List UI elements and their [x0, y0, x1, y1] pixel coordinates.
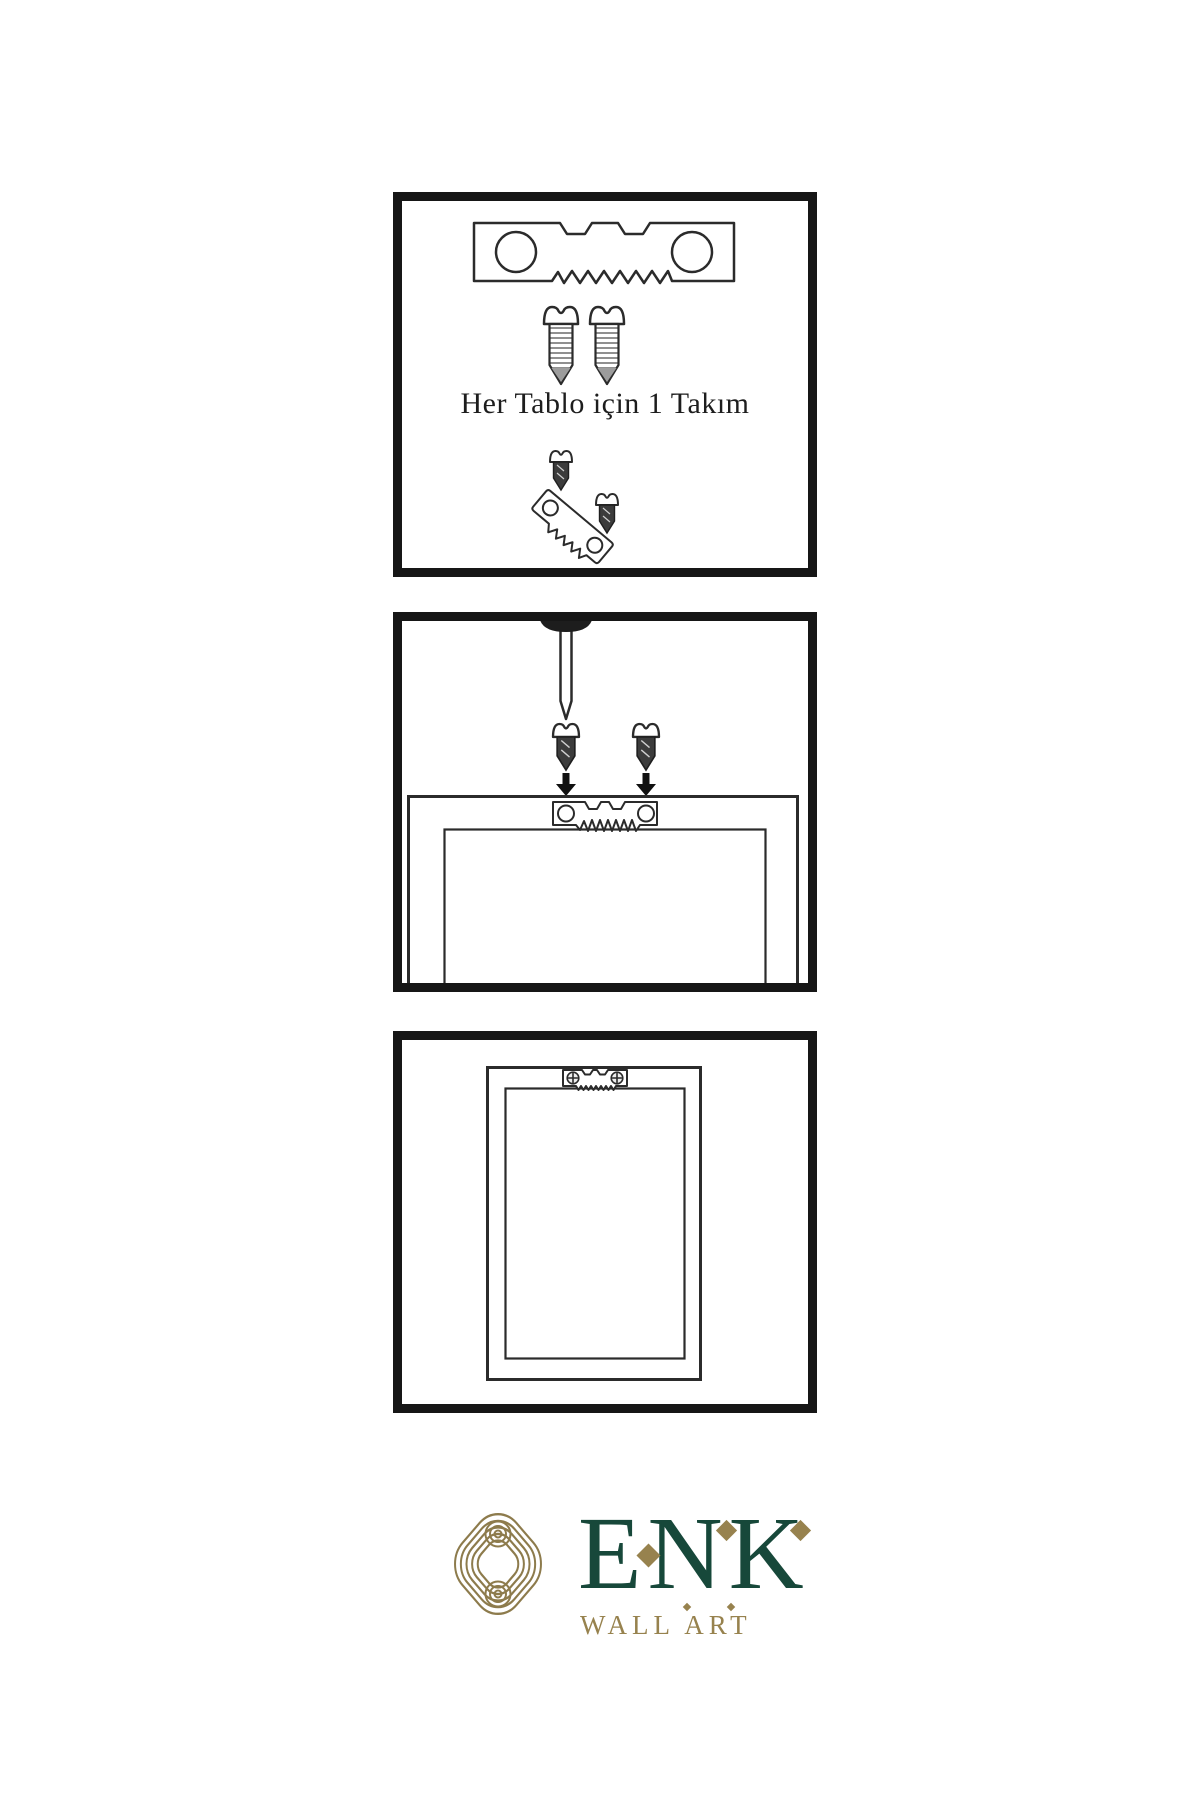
phillips-screw-head-icon — [567, 1072, 579, 1084]
phillips-screw-head-icon — [611, 1072, 623, 1084]
screw-icon — [553, 724, 579, 770]
brand-name: ENK — [578, 1502, 858, 1606]
wall-mounting-illustration — [402, 621, 808, 983]
angled-hanger-kit-icon — [527, 451, 618, 568]
wall-nail-icon — [540, 621, 592, 719]
mounting-screw-icon — [590, 307, 624, 384]
sawtooth-hanger-icon — [474, 223, 734, 283]
brand-logo: ENK WALL ART — [440, 1492, 870, 1652]
knot-logo-icon — [440, 1494, 556, 1634]
hardware-kit-illustration — [402, 201, 808, 568]
step-2-panel — [393, 612, 817, 992]
brand-subtitle-block: WALL ART — [580, 1610, 840, 1644]
frame-back-outline — [488, 1068, 701, 1380]
brand-name-block: ENK — [578, 1502, 858, 1606]
instruction-sheet: Her Tablo için 1 Takım — [0, 0, 1200, 1800]
brand-subtitle: WALL ART — [580, 1610, 840, 1641]
screw-icon — [633, 724, 659, 770]
step-1-panel: Her Tablo için 1 Takım — [393, 192, 817, 577]
installed-sawtooth-hanger-icon — [563, 1070, 627, 1090]
hung-frame-illustration — [402, 1040, 808, 1404]
mounting-screw-icon — [544, 307, 578, 384]
down-arrow-icon — [556, 773, 576, 796]
down-arrow-icon — [636, 773, 656, 796]
step-3-panel — [393, 1031, 817, 1413]
step-caption: Her Tablo için 1 Takım — [402, 387, 808, 421]
